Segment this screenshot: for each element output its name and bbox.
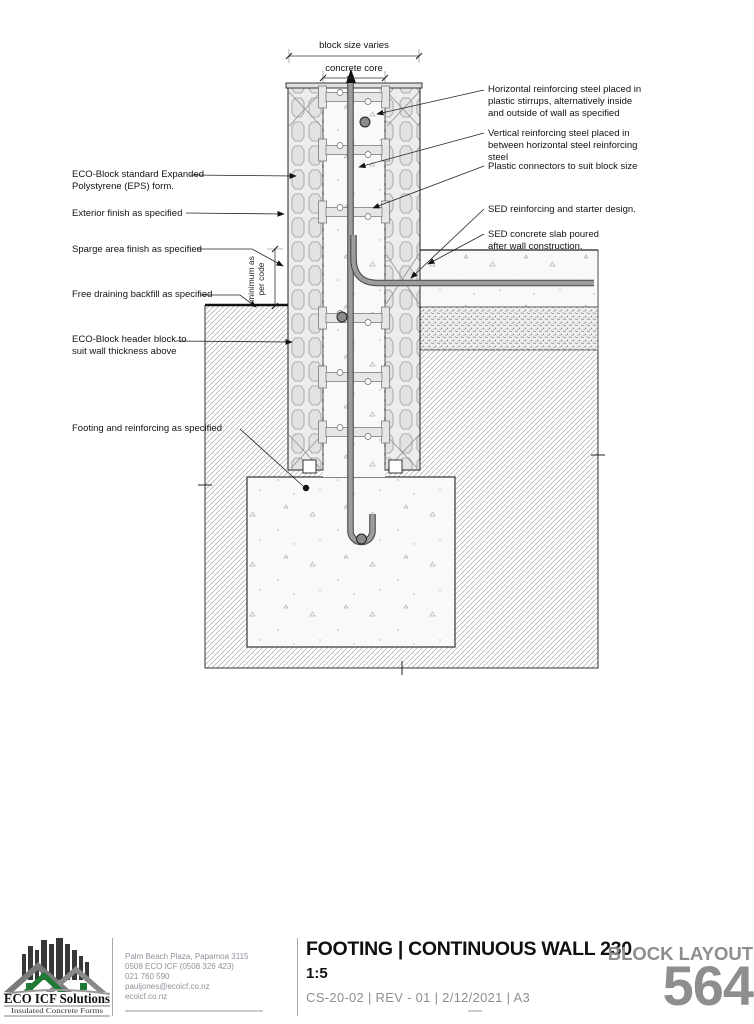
logo-window-right (80, 983, 87, 990)
contact-email: pauljones@ecoicf.co.nz (125, 982, 248, 992)
annotation-footing: Footing and reinforcing as specified (72, 423, 222, 435)
eps-panel-left (288, 87, 323, 470)
contact-block: Palm Beach Plaza, Papamoa 3115 0508 ECO … (125, 952, 248, 1002)
logo-tagline: Insulated Concrete Forms (11, 1006, 103, 1015)
fine-print-mark (468, 1010, 482, 1012)
annotation-minimum-code: minimum as per code (246, 249, 272, 309)
annotation-exterior-finish: Exterior finish as specified (72, 208, 182, 220)
titleblock-divider-2 (297, 938, 298, 1016)
annotation-horizontal-steel: Horizontal reinforcing steel placed in p… (488, 84, 668, 120)
fine-print-line (125, 1010, 263, 1012)
footing-leader-dot (303, 485, 309, 491)
sheet-number: 564 (663, 958, 753, 1014)
annotation-sparge-finish: Sparge area finish as specified (72, 244, 202, 256)
contact-phone-0508: 0508 ECO ICF (0508 326 423) (125, 962, 248, 972)
header-foot-left (303, 460, 316, 473)
annotation-backfill: Free draining backfill as specified (72, 289, 212, 301)
dim-block-size-label: block size varies (319, 40, 389, 51)
annotation-plastic-connectors: Plastic connectors to suit block size (488, 161, 678, 173)
footing-bar-section (357, 534, 367, 544)
annotation-vertical-steel: Vertical reinforcing steel placed in bet… (488, 128, 668, 164)
annotation-sed-reinforcing: SED reinforcing and starter design. (488, 204, 678, 216)
logo-window-left (26, 983, 33, 990)
annotation-sed-slab: SED concrete slab poured after wall cons… (488, 229, 668, 253)
company-logo: ECO ICF Solutions Insulated Concrete For… (2, 936, 112, 1018)
granular-fill-band (420, 307, 598, 350)
logo-name: ECO ICF Solutions (4, 992, 110, 1007)
wall-top-cap (286, 83, 422, 88)
horizontal-bar-section-upper (360, 117, 370, 127)
concrete-slab (420, 250, 598, 307)
sheet-title: FOOTING | CONTINUOUS WALL 230 (306, 938, 632, 961)
sheet-scale: 1:5 (306, 965, 328, 982)
contact-website: ecoicf.co.nz (125, 992, 248, 1002)
annotation-header-block: ECO-Block header block to suit wall thic… (72, 334, 187, 358)
dim-concrete-core-label: concrete core (325, 63, 383, 74)
header-foot-right (389, 460, 402, 473)
contact-address: Palm Beach Plaza, Papamoa 3115 (125, 952, 248, 962)
sheet-meta: CS-20-02 | REV - 01 | 2/12/2021 | A3 (306, 990, 530, 1005)
contact-phone-mobile: 021 760 590 (125, 972, 248, 982)
annotation-eps-form: ECO-Block standard Expanded Polystyrene … (72, 169, 204, 193)
drawing-sheet: block size varies concrete core ECO-Bloc… (0, 0, 754, 1024)
titleblock-divider-1 (112, 938, 113, 1016)
horizontal-bar-section-lower (337, 312, 347, 322)
